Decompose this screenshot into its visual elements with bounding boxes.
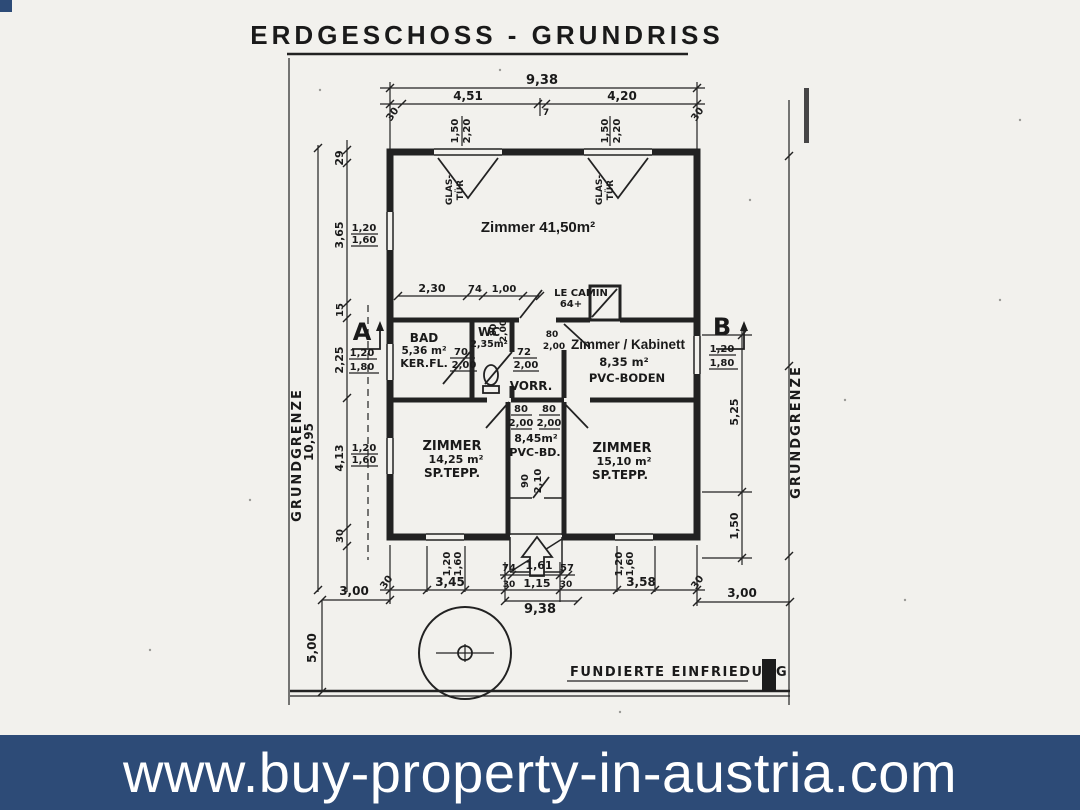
room-area-bad: 5,36 m²: [401, 345, 447, 357]
dim-top-total: 9,38: [526, 73, 558, 88]
dim-door-bad-w: 70: [454, 347, 468, 358]
dim-top-mid: 7: [543, 108, 549, 118]
dim-window-top-right-h: 2,20: [612, 119, 623, 144]
dim-window-bottom-left-h: 1,60: [453, 552, 464, 577]
dim-window-top-left-w: 1,50: [450, 119, 461, 144]
dim-right-1: 5,25: [728, 398, 741, 425]
room-label-main: Zimmer 41,50m²: [481, 219, 595, 236]
chimney-note: 64+: [560, 299, 582, 310]
dim-door-wc-w: 72: [517, 347, 531, 358]
boundary-label-right: GRUNDGRENZE: [789, 365, 804, 499]
dim-site-right: 3,00: [727, 586, 757, 600]
dim-mid-2: 74: [468, 284, 482, 295]
plan-title-text: ERDGESCHOSS - GRUNDRISS: [250, 20, 723, 50]
room-floor-zimmer-right: SP.TEPP.: [592, 468, 648, 482]
dim-mid-1: 2,30: [418, 282, 445, 295]
website-url-text: www.buy-property-in-austria.com: [123, 740, 957, 805]
dim-bottom-total: 9,38: [524, 602, 556, 617]
glass-door-label-left-2: TÜR: [455, 180, 466, 200]
toilet-icon: [483, 365, 499, 393]
dim-bottom-offset-left: 30: [378, 574, 395, 592]
dim-right-2: 1,50: [728, 512, 741, 539]
room-label-zimmer-right: ZIMMER: [592, 441, 651, 456]
website-banner: www.buy-property-in-austria.com: [0, 735, 1080, 810]
room-label-bad: BAD: [410, 331, 438, 345]
room-labels: Zimmer 41,50m² GLAS- TÜR GLAS- TÜR BAD 5…: [400, 175, 685, 482]
section-marker-a: A: [353, 318, 372, 346]
dim-top-offset-left: 30: [384, 106, 401, 124]
room-area-zimmer-left: 14,25 m²: [429, 453, 484, 466]
dim-window-top-right-w: 1,50: [600, 119, 611, 144]
dim-corridor-h2: 2,00: [537, 418, 562, 429]
dim-left-1: 29: [333, 150, 346, 165]
room-floor-zimmer-left: SP.TEPP.: [424, 466, 480, 480]
room-floor-kabinett: PVC-BODEN: [589, 371, 665, 385]
dim-door-bad-h: 2,00: [452, 360, 477, 371]
dim-left-6: 30: [335, 529, 346, 543]
room-floor-vorraum: PVC-BD.: [509, 446, 560, 459]
dim-top-right: 4,20: [607, 89, 637, 103]
room-area-kabinett: 8,35 m²: [599, 355, 648, 369]
chimney-label: LE CAMIN: [554, 288, 608, 299]
dim-window-bottom-right-w: 1,20: [614, 552, 625, 577]
dim-bottom-4: 57: [560, 563, 574, 574]
dim-window-left1-w: 1,20: [352, 223, 377, 234]
plan-title: ERDGESCHOSS - GRUNDRISS: [250, 20, 723, 54]
dim-left-5: 4,13: [333, 444, 346, 471]
dim-window-left2-w: 1,20: [352, 443, 377, 454]
dim-corridor-w2: 80: [542, 404, 556, 415]
dim-window-bottom-left-w: 1,20: [442, 552, 453, 577]
dim-door-kabinett-h: 2,00: [543, 342, 565, 352]
scanned-floorplan-page: ERDGESCHOSS - GRUNDRISS GRUNDGRENZE GRUN…: [0, 0, 1080, 810]
dim-left-2: 3,65: [333, 221, 346, 248]
corner-decoration: [0, 0, 12, 12]
dim-door-kamin-w: 80: [489, 324, 499, 337]
dim-mid-3: 1,00: [492, 284, 517, 295]
dim-window-a-w: 1,20: [350, 348, 375, 359]
dim-corridor-w1: 80: [514, 404, 528, 415]
dim-window-left2-h: 1,60: [352, 455, 377, 466]
room-label-kabinett: Zimmer / Kabinett: [571, 337, 686, 352]
dim-window-left1-h: 1,60: [352, 235, 377, 246]
dim-window-a-h: 1,80: [350, 362, 375, 373]
dim-bottom-2: 74: [502, 563, 516, 574]
fence-label: FUNDIERTE EINFRIEDUNG: [570, 665, 788, 680]
dim-corridor-h1: 2,00: [509, 418, 534, 429]
room-area-zimmer-right: 15,10 m²: [597, 455, 652, 468]
dim-site-left: 3,00: [339, 584, 369, 598]
floorplan-drawing: ERDGESCHOSS - GRUNDRISS GRUNDGRENZE GRUN…: [0, 0, 1080, 735]
dim-bottom-3: 1,61: [525, 559, 552, 572]
dim-window-top-left-h: 2,20: [462, 119, 473, 144]
dim-top-left: 4,51: [453, 89, 483, 103]
dim-door-kabinett-w: 80: [546, 330, 559, 340]
dim-entry-door-h: 2,10: [533, 469, 544, 494]
fence-post: [762, 659, 776, 691]
dim-bottom-8: 30: [560, 580, 573, 590]
glass-door-label-right-1: GLAS-: [595, 175, 605, 206]
dim-window-b-h: 1,80: [710, 358, 735, 369]
glass-door-swings: [438, 158, 648, 198]
glass-door-label-right-2: TÜR: [605, 180, 616, 200]
dim-site-height: 5,00: [305, 633, 319, 663]
dim-entry-door-w: 90: [520, 474, 531, 488]
room-area-vorraum: 8,45m²: [514, 432, 558, 445]
dim-left-total: 10,95: [302, 423, 316, 461]
dim-left-4: 2,25: [333, 346, 346, 373]
dim-bottom-offset-right: 30: [689, 574, 706, 592]
glass-door-label-left-1: GLAS-: [445, 175, 455, 206]
section-marker-b: B: [713, 313, 731, 341]
dim-window-bottom-right-h: 1,60: [625, 552, 636, 577]
room-label-zimmer-left: ZIMMER: [422, 439, 481, 454]
dim-door-kamin-h: 2,00: [499, 320, 509, 342]
dim-window-b-w: 1,20: [710, 344, 735, 355]
dim-bottom-7: 1,15: [523, 577, 550, 590]
scan-artifacts: [149, 69, 1021, 713]
room-label-vorraum: VORR.: [510, 379, 553, 393]
room-floor-bad: KER.FL.: [400, 357, 448, 370]
well-circle: [419, 607, 511, 699]
dim-left-3: 15: [335, 303, 346, 317]
dim-door-wc-h: 2,00: [514, 360, 539, 371]
dim-top-offset-right: 30: [689, 106, 706, 124]
